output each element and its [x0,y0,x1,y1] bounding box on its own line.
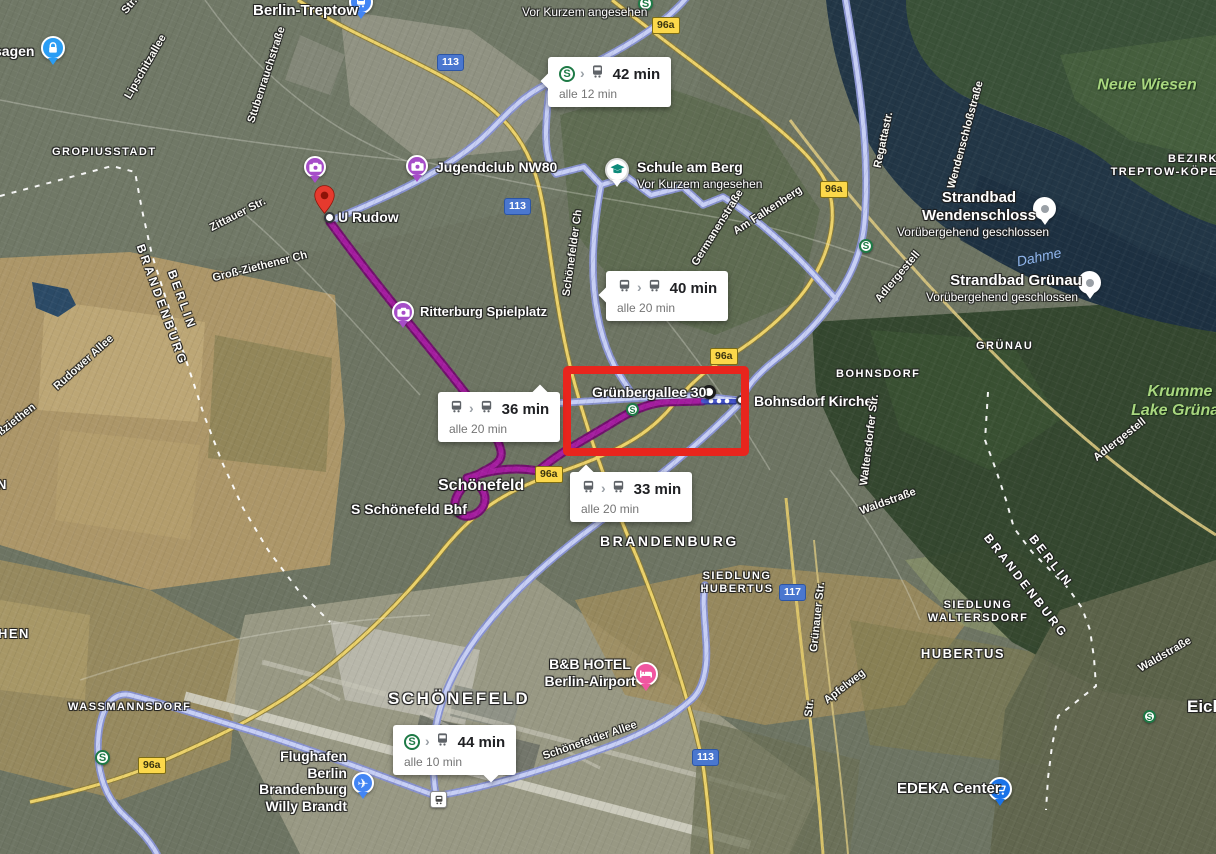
label-str: Str. [803,699,818,718]
airport-marker-icon[interactable]: ✈ [352,772,374,794]
bus-icon [647,278,662,298]
bus-icon [611,479,626,499]
highway-badge: 117 [779,584,806,601]
label-hubertus: HUBERTUS [921,646,1005,661]
route-badge: 96a [652,17,680,34]
label-vor-kurzem-angesehen: Vor Kurzem angesehen [522,5,647,19]
label-n: N [0,477,8,492]
closed-place-pin[interactable] [1033,197,1056,220]
label-bezirk: BEZIRKTREPTOW-KÖPE [1111,153,1216,179]
lock-marker-icon[interactable] [41,36,65,60]
attraction-marker-icon[interactable] [406,155,428,177]
train-icon [435,732,450,752]
label-b&b-hotel[interactable]: B&B HOTELBerlin-Airport [545,656,636,689]
label-strandbad-grünau[interactable]: Strandbad Grünau [950,272,1082,290]
sbahn-logo-icon[interactable]: S [95,750,110,765]
transit-time-bubble[interactable]: ›40 minalle 20 min [606,271,728,321]
label-siedlung: SIEDLUNGHUBERTUS [700,570,773,596]
transit-time-bubble[interactable]: S›44 minalle 10 min [393,725,516,775]
transit-time: 44 min [458,734,506,751]
sbahn-logo-icon[interactable]: S [859,239,873,253]
transit-frequency: alle 12 min [559,87,660,101]
transit-time-bubble[interactable]: ›33 minalle 20 min [570,472,692,522]
transit-time: 33 min [634,481,682,498]
label-hen: HEN [0,626,30,641]
label-schönefeld: SCHÖNEFELD [388,689,530,709]
chevron-right-icon: › [425,734,430,748]
school-marker-icon[interactable] [605,158,629,182]
transit-time: 42 min [613,66,661,83]
highway-badge: 113 [504,198,531,215]
label-edeka-center[interactable]: EDEKA Center [897,780,1001,798]
sbahn-logo-icon[interactable]: S [1143,710,1156,723]
label-bohnsdorf: BOHNSDORF [836,368,920,381]
label-sagen[interactable]: sagen [0,43,34,60]
label-strandbad[interactable]: StrandbadWendenschloss [922,189,1036,224]
route-badge: 96a [535,466,563,483]
label-gropiusstadt: GROPIUSSTADT [52,146,157,159]
highway-badge: 113 [692,749,719,766]
label-schule-am-berg[interactable]: Schule am Berg [637,159,743,176]
transit-route-line[interactable] [741,0,866,402]
chevron-right-icon: › [637,280,642,294]
label-vorübergehend-geschlossen: Vorübergehend geschlossen [897,225,1049,239]
label-schönefeld[interactable]: Schönefeld [438,477,524,496]
chevron-right-icon: › [580,66,585,80]
train-icon [590,64,605,84]
transit-route-line[interactable] [741,0,866,402]
transit-frequency: alle 20 min [581,502,681,516]
label-s-schönefeld-bhf[interactable]: S Schönefeld Bhf [351,501,467,518]
label-berlin-treptow[interactable]: Berlin-Treptow [253,2,358,20]
label-eichw[interactable]: Eichw [1187,697,1216,717]
label-vorübergehend-geschlossen: Vorübergehend geschlossen [926,290,1078,304]
sbahn-icon: S [559,66,575,82]
transit-time-bubble[interactable]: S›42 minalle 12 min [548,57,671,107]
route-badge: 96a [820,181,848,198]
route-badge: 96a [710,348,738,365]
transit-time: 40 min [670,280,718,297]
label-grünau: GRÜNAU [976,340,1033,353]
transit-frequency: alle 10 min [404,755,505,769]
sbahn-icon: S [404,734,420,750]
bus-icon [617,278,632,298]
label-brandenburg: BRANDENBURG [600,533,739,550]
transit-frequency: alle 20 min [449,422,549,436]
attraction-marker-icon[interactable] [304,156,326,178]
chevron-right-icon: › [601,481,606,495]
label-wassmannsdorf: WASSMANNSDORF [68,701,191,714]
bus-icon [581,479,596,499]
label-jugendclub-nw80[interactable]: Jugendclub NW80 [436,159,557,176]
transit-stop-dot[interactable] [324,212,335,223]
label-bohnsdorf-kirche[interactable]: Bohnsdorf Kirche [754,393,872,410]
label-ritterburg-spielplatz[interactable]: Ritterburg Spielplatz [420,304,547,319]
label-neue-wiesen: Neue Wiesen [1097,77,1196,96]
chevron-right-icon: › [469,401,474,415]
label-u-rudow[interactable]: U Rudow [338,209,399,226]
bus-icon [449,399,464,419]
bus-icon [479,399,494,419]
hotel-marker-icon[interactable] [634,662,658,686]
label-krumme: KrummeLake Grünau [1131,383,1216,421]
satellite-map-canvas[interactable]: 96a96a96a96a96a113113113117 SSSSS ✈ Berl… [0,0,1216,854]
transit-frequency: alle 20 min [617,301,717,315]
transit-route-line[interactable] [330,0,688,221]
label-flughafen[interactable]: FlughafenBerlinBrandenburgWilly Brandt [259,748,347,814]
highlight-rectangle [563,366,749,456]
transit-time-bubble[interactable]: ›36 minalle 20 min [438,392,560,442]
label-siedlung: SIEDLUNGWALTERSDORF [928,599,1029,625]
highway-badge: 113 [437,54,464,71]
attraction-marker-icon[interactable] [392,301,414,323]
transit-time: 36 min [502,401,550,418]
train-station-icon[interactable] [430,791,447,808]
route-badge: 96a [138,757,166,774]
label-vor-kurzem-angesehen: Vor Kurzem angesehen [637,177,762,191]
